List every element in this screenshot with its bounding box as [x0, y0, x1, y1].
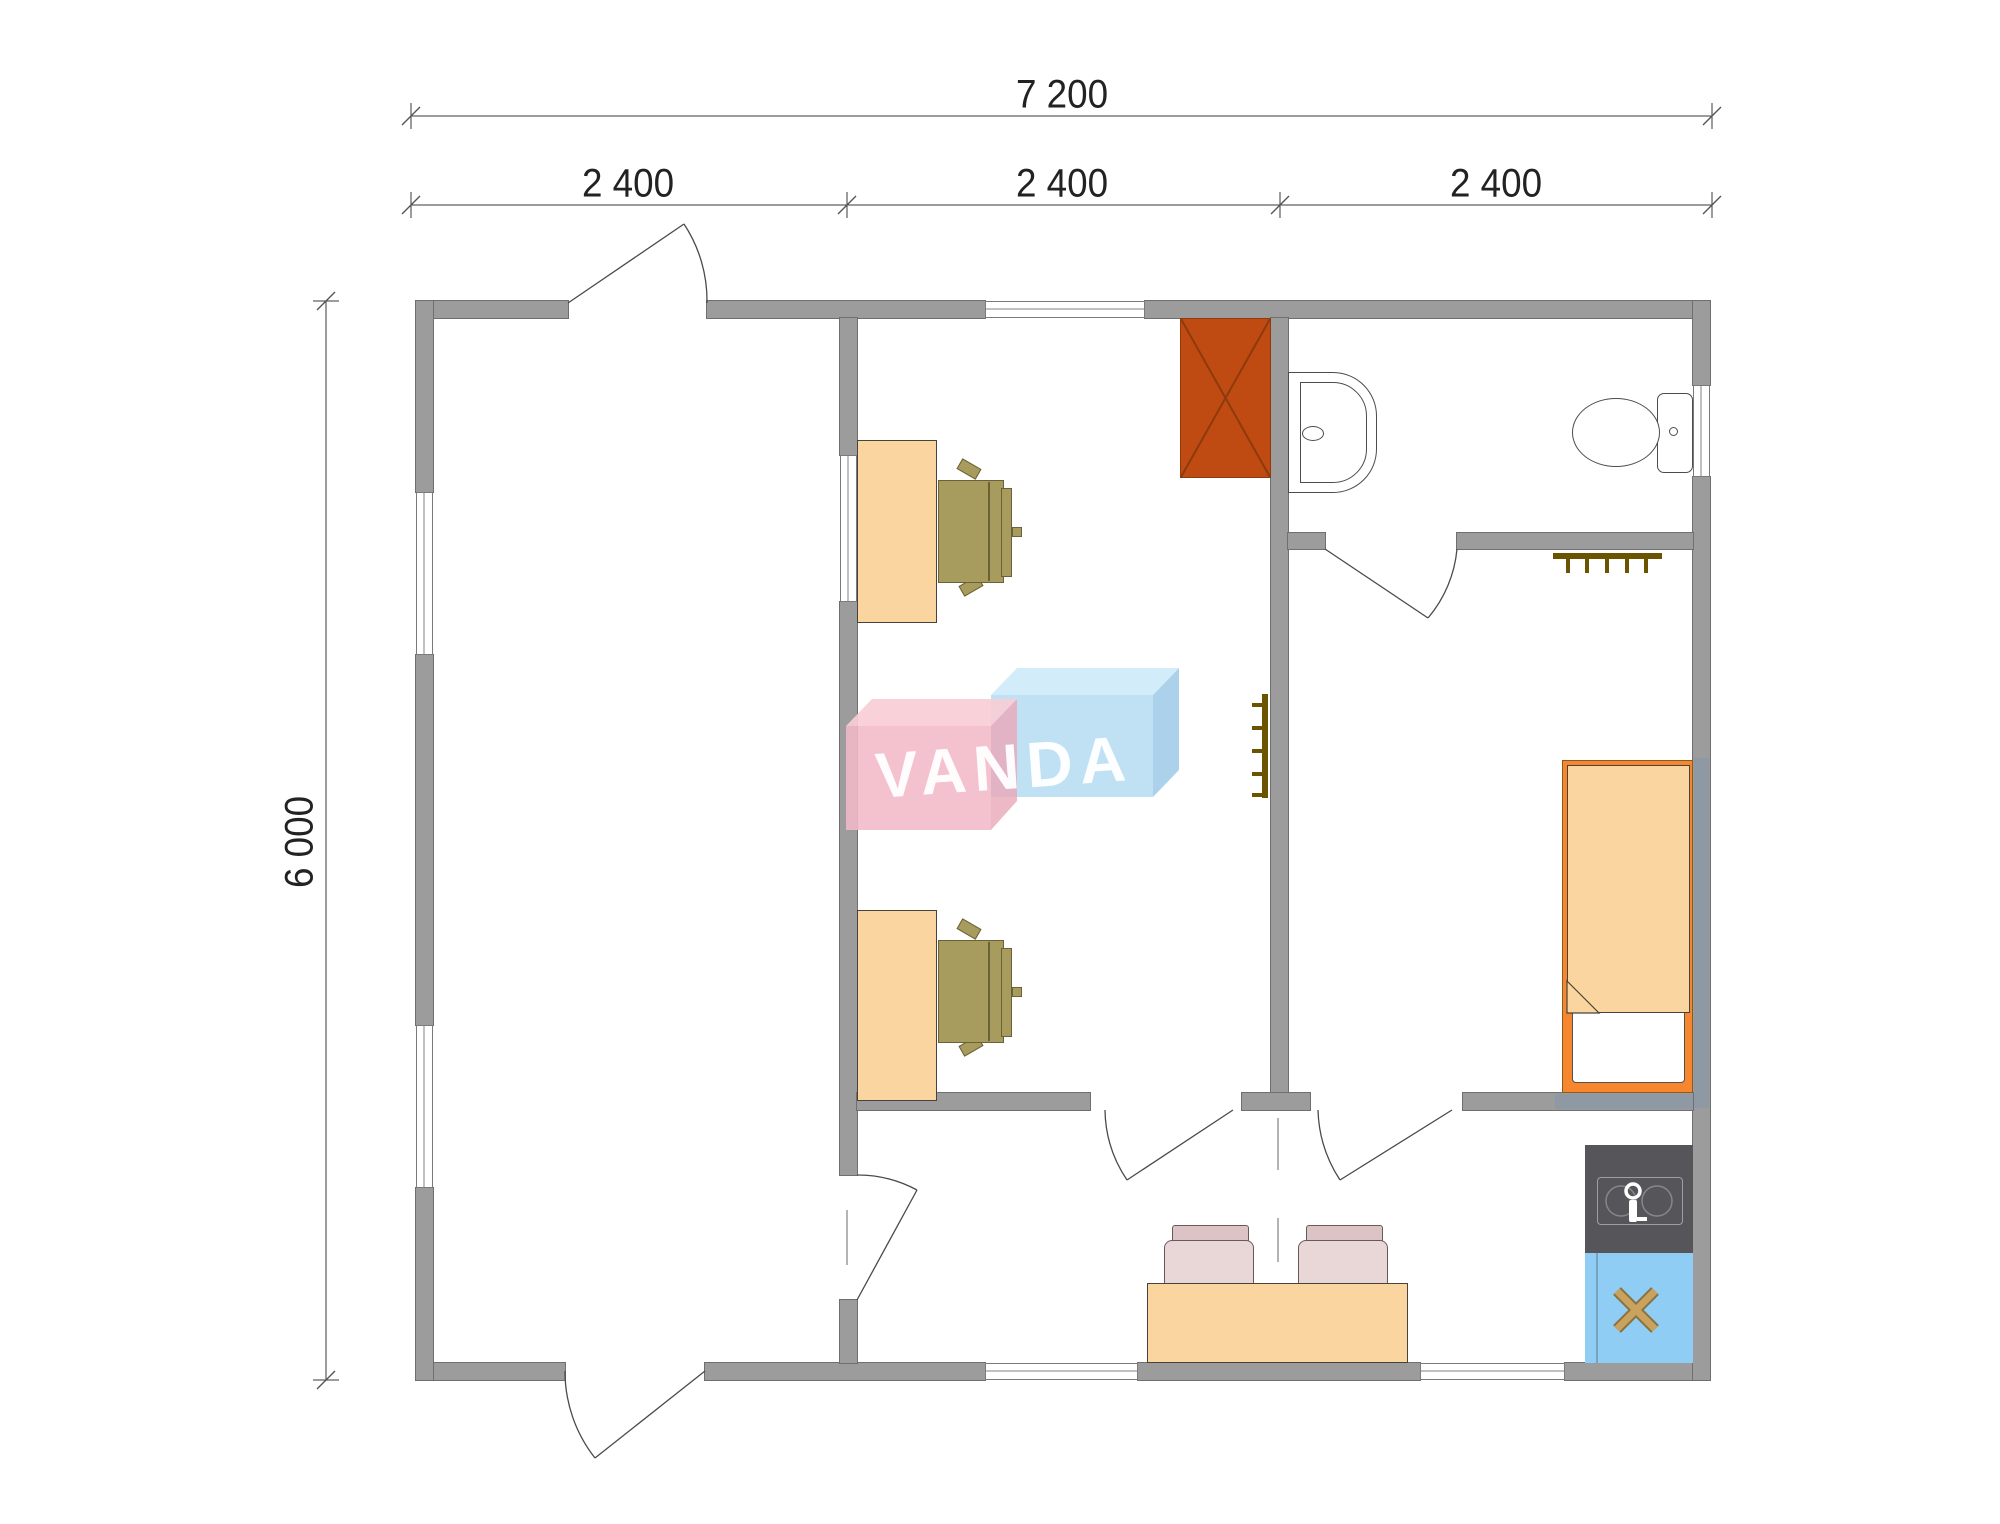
dim-overall-height: 6 000 — [278, 796, 323, 888]
door-symbols — [565, 224, 1457, 1458]
blanket-fold — [1567, 981, 1599, 1013]
door-hall-corridor-leaf — [857, 1190, 917, 1300]
dim-segment-3: 2 400 — [1450, 162, 1542, 207]
coat-rack-bedroom — [1553, 556, 1662, 573]
door-top-left-arc — [684, 224, 707, 303]
door-bedroom-arc — [1318, 1110, 1340, 1180]
door-bathroom-leaf — [1325, 549, 1428, 618]
door-bottom-exterior-arc — [565, 1371, 595, 1458]
door-office-leaf — [1127, 1110, 1233, 1180]
door-bedroom-leaf — [1340, 1110, 1452, 1180]
coat-rack-office — [1252, 694, 1265, 798]
door-office-arc — [1105, 1110, 1127, 1180]
dim-segment-1: 2 400 — [582, 162, 674, 207]
door-bathroom-arc — [1428, 549, 1457, 618]
wardrobe-x-icon — [1181, 319, 1270, 477]
stove-x-icon — [1617, 1291, 1655, 1329]
door-top-left-leaf — [568, 224, 684, 303]
floor-plan: VANDA 7 200 2 400 2 400 2 400 6 000 — [0, 0, 2000, 1524]
opening-divider-lines — [847, 1118, 1278, 1265]
window-glazing-lines — [424, 309, 1701, 1371]
dim-overall-width: 7 200 — [1016, 73, 1108, 118]
door-hall-corridor-arc — [857, 1175, 917, 1190]
door-bottom-exterior-leaf — [595, 1371, 705, 1458]
dim-segment-2: 2 400 — [1016, 162, 1108, 207]
kitchen-faucet-icon — [1626, 1184, 1647, 1222]
